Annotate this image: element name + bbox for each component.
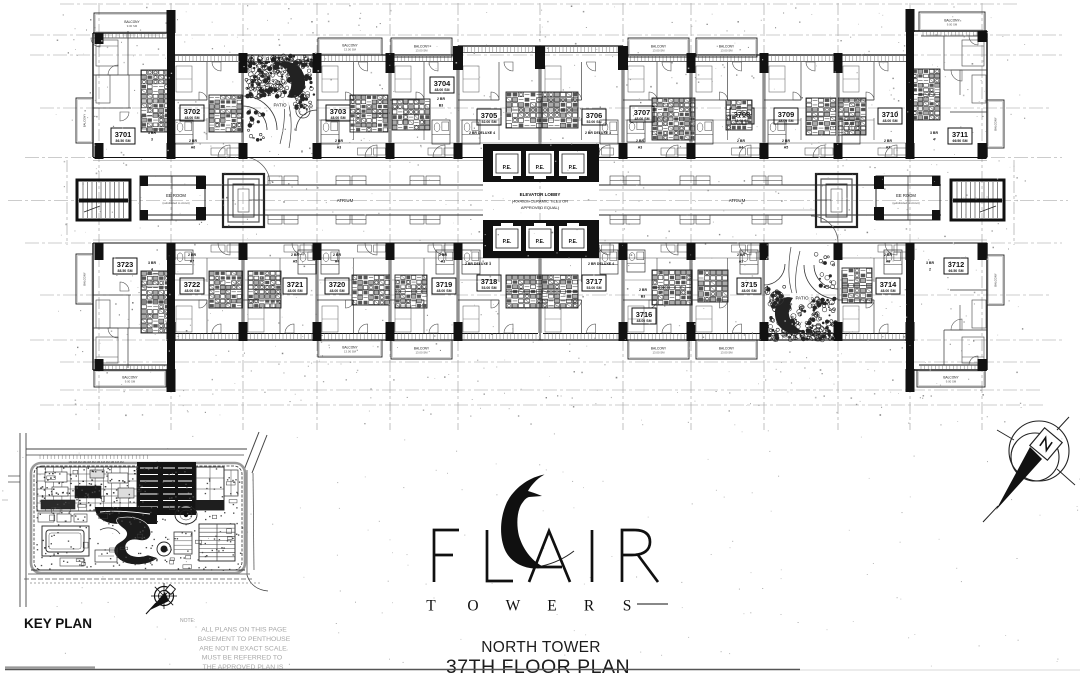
svg-text:A8: A8 — [886, 260, 891, 264]
svg-text:A3: A3 — [638, 146, 643, 150]
svg-text:4: 4 — [933, 138, 935, 142]
svg-text:PATIO: PATIO — [273, 103, 287, 108]
svg-text:2: 2 — [929, 268, 931, 272]
svg-text:3718: 3718 — [481, 277, 497, 286]
svg-text:3 BR: 3 BR — [148, 261, 156, 265]
svg-text:53.00 SM: 53.00 SM — [587, 286, 602, 290]
svg-text:BALCONY: BALCONY — [994, 273, 998, 287]
svg-text:2 BR: 2 BR — [437, 97, 445, 101]
svg-text:ARE NOT IN EXACT SCALE: ARE NOT IN EXACT SCALE — [199, 645, 287, 652]
svg-text:1M 1M 1M 1M 4M 4M 1M 1M 1M 1M: 1M 1M 1M 1M 4M 4M 1M 1M 1M 1M 1M 1M — [68, 460, 124, 464]
svg-text:48.00 SM: 48.00 SM — [331, 116, 346, 120]
svg-text:3721: 3721 — [287, 280, 303, 289]
svg-text:48.00 SM: 48.00 SM — [779, 119, 794, 123]
svg-text:3719: 3719 — [436, 280, 452, 289]
svg-text:P.E.: P.E. — [569, 239, 578, 245]
svg-text:A7: A7 — [886, 146, 891, 150]
svg-text:3: 3 — [151, 138, 153, 142]
svg-text:9.00 SM: 9.00 SM — [947, 22, 958, 26]
svg-text:(40x40cm CERAMIC TILES OR: (40x40cm CERAMIC TILES OR — [512, 199, 568, 204]
svg-text:13.00 SM: 13.00 SM — [344, 47, 357, 51]
svg-text:2 BR: 2 BR — [189, 139, 197, 143]
svg-text:S: S — [623, 598, 632, 615]
svg-text:13.00 SM: 13.00 SM — [653, 350, 666, 354]
svg-text:BALCONY: BALCONY — [83, 114, 87, 128]
svg-text:E: E — [547, 598, 556, 615]
svg-text:MUST BE REFERRED TO: MUST BE REFERRED TO — [202, 655, 282, 662]
svg-text:ATRIUM: ATRIUM — [729, 198, 746, 203]
svg-text:EE ROOM: EE ROOM — [166, 193, 186, 198]
svg-text:2 BR: 2 BR — [439, 253, 447, 257]
svg-text:13.00 SM: 13.00 SM — [721, 48, 734, 52]
svg-text:3720: 3720 — [329, 280, 345, 289]
svg-text:13.00 SM: 13.00 SM — [344, 349, 357, 353]
svg-text:3 BR: 3 BR — [930, 131, 938, 135]
svg-text:3 BR: 3 BR — [926, 261, 934, 265]
svg-text:P.E.: P.E. — [503, 165, 512, 171]
svg-text:48.00 SM: 48.00 SM — [637, 319, 652, 323]
svg-text:3702: 3702 — [184, 107, 200, 116]
svg-text:2 BR: 2 BR — [884, 139, 892, 143]
svg-text:P.E.: P.E. — [569, 165, 578, 171]
svg-text:13.00 SM: 13.00 SM — [416, 350, 429, 354]
svg-text:9.00 SM: 9.00 SM — [125, 379, 136, 383]
svg-text:PATIO: PATIO — [795, 296, 809, 301]
svg-text:66.50 SM: 66.50 SM — [949, 269, 964, 273]
svg-text:P.E.: P.E. — [536, 239, 545, 245]
svg-text:3704: 3704 — [434, 79, 451, 88]
svg-text:A4: A4 — [335, 260, 340, 264]
svg-text:(subdivided to circuit): (subdivided to circuit) — [892, 201, 919, 205]
svg-text:NORTH TOWER: NORTH TOWER — [481, 639, 601, 656]
svg-text:P.E.: P.E. — [503, 239, 512, 245]
svg-text:3706: 3706 — [586, 111, 602, 120]
svg-text:2 BR: 2 BR — [782, 139, 790, 143]
svg-text:48.00 SM: 48.00 SM — [435, 88, 450, 92]
svg-text:3716: 3716 — [636, 310, 652, 319]
svg-text:3711: 3711 — [952, 130, 968, 139]
svg-text:ATRIUM: ATRIUM — [337, 198, 354, 203]
svg-text:P.E.: P.E. — [536, 165, 545, 171]
svg-text:2 BR: 2 BR — [737, 253, 745, 257]
svg-text:3701: 3701 — [115, 130, 131, 139]
svg-text:48.00 SM: 48.00 SM — [288, 289, 303, 293]
svg-text:48.00 SM: 48.00 SM — [635, 117, 650, 121]
svg-text:48.00 SM: 48.00 SM — [185, 289, 200, 293]
svg-text:ALL PLANS ON THIS PAGE: ALL PLANS ON THIS PAGE — [201, 627, 287, 634]
svg-text:KEY PLAN: KEY PLAN — [24, 616, 92, 631]
svg-text:3707: 3707 — [634, 108, 650, 117]
svg-text:B3: B3 — [439, 104, 444, 108]
svg-text:3 BR: 3 BR — [148, 131, 156, 135]
svg-text:9.00 SM: 9.00 SM — [946, 379, 957, 383]
svg-text:NOTE:: NOTE: — [180, 618, 195, 624]
svg-text:9.00 SM: 9.00 SM — [127, 24, 138, 28]
svg-text:2 BR DELUXE 4: 2 BR DELUXE 4 — [588, 262, 614, 266]
svg-text:R: R — [584, 598, 595, 615]
svg-text:48.00 SM: 48.00 SM — [742, 289, 757, 293]
svg-text:A7: A7 — [190, 260, 195, 264]
svg-text:48.00 SM: 48.00 SM — [437, 289, 452, 293]
svg-text:T: T — [426, 598, 436, 615]
svg-text:2 BR: 2 BR — [335, 139, 343, 143]
svg-text:37TH FLOOR PLAN: 37TH FLOOR PLAN — [446, 656, 630, 674]
svg-text:2 BR: 2 BR — [884, 253, 892, 257]
svg-text:3703: 3703 — [330, 107, 346, 116]
svg-text:3714: 3714 — [880, 280, 897, 289]
svg-text:A5: A5 — [784, 146, 789, 150]
svg-text:A4: A4 — [739, 146, 744, 150]
svg-text:(subdivided to circuit): (subdivided to circuit) — [162, 201, 189, 205]
svg-text:O: O — [467, 598, 478, 615]
svg-text:13.00 SM: 13.00 SM — [653, 48, 666, 52]
svg-text:48.00 SM: 48.00 SM — [185, 116, 200, 120]
svg-text:4: 4 — [151, 268, 153, 272]
svg-text:A6: A6 — [191, 146, 196, 150]
svg-text:ELEVATOR LOBBY: ELEVATOR LOBBY — [520, 192, 561, 197]
svg-text:2 BR DELUXE 3: 2 BR DELUXE 3 — [585, 131, 611, 135]
svg-text:88.50 SM: 88.50 SM — [118, 269, 133, 273]
svg-text:2 BR: 2 BR — [639, 288, 647, 292]
svg-text:3715: 3715 — [741, 280, 757, 289]
svg-text:13.00 SM: 13.00 SM — [721, 350, 734, 354]
svg-text:53.00 SM: 53.00 SM — [482, 286, 497, 290]
svg-text:2 BR: 2 BR — [636, 139, 644, 143]
svg-text:52.00 SM: 52.00 SM — [482, 120, 497, 124]
svg-text:48.00 SM: 48.00 SM — [883, 119, 898, 123]
svg-text:BALCONY: BALCONY — [83, 272, 87, 286]
svg-text:W: W — [506, 598, 521, 615]
svg-text:2 BR DELUXE 4: 2 BR DELUXE 4 — [469, 131, 495, 135]
svg-text:BALCONY: BALCONY — [994, 117, 998, 131]
svg-text:2 BR: 2 BR — [291, 253, 299, 257]
svg-text:3723: 3723 — [117, 260, 133, 269]
svg-text:66.50 SM: 66.50 SM — [953, 139, 968, 143]
svg-text:A3: A3 — [441, 260, 446, 264]
svg-text:3705: 3705 — [481, 111, 497, 120]
svg-text:86.50 SM: 86.50 SM — [116, 139, 131, 143]
svg-text:APPROVED EQUAL): APPROVED EQUAL) — [521, 205, 560, 210]
svg-text:B3: B3 — [641, 295, 646, 299]
svg-text:48.00 SM: 48.00 SM — [881, 289, 896, 293]
svg-text:EE ROOM: EE ROOM — [896, 193, 916, 198]
svg-text:3709: 3709 — [778, 110, 794, 119]
svg-text:2 BR: 2 BR — [737, 139, 745, 143]
svg-text:A3: A3 — [739, 260, 744, 264]
svg-text:2 BR: 2 BR — [188, 253, 196, 257]
svg-text:52.00 SM: 52.00 SM — [587, 120, 602, 124]
svg-text:2 BR: 2 BR — [333, 253, 341, 257]
svg-text:2 BR DELUXE 3: 2 BR DELUXE 3 — [465, 262, 491, 266]
svg-text:A5: A5 — [293, 260, 298, 264]
svg-text:3722: 3722 — [184, 280, 200, 289]
svg-text:A3: A3 — [337, 146, 342, 150]
svg-text:BASEMENT TO PENTHOUSE: BASEMENT TO PENTHOUSE — [198, 636, 291, 643]
svg-text:48.00 SM: 48.00 SM — [330, 289, 345, 293]
svg-text:13.00 SM: 13.00 SM — [416, 48, 429, 52]
svg-text:3710: 3710 — [882, 110, 898, 119]
svg-text:3717: 3717 — [586, 277, 602, 286]
